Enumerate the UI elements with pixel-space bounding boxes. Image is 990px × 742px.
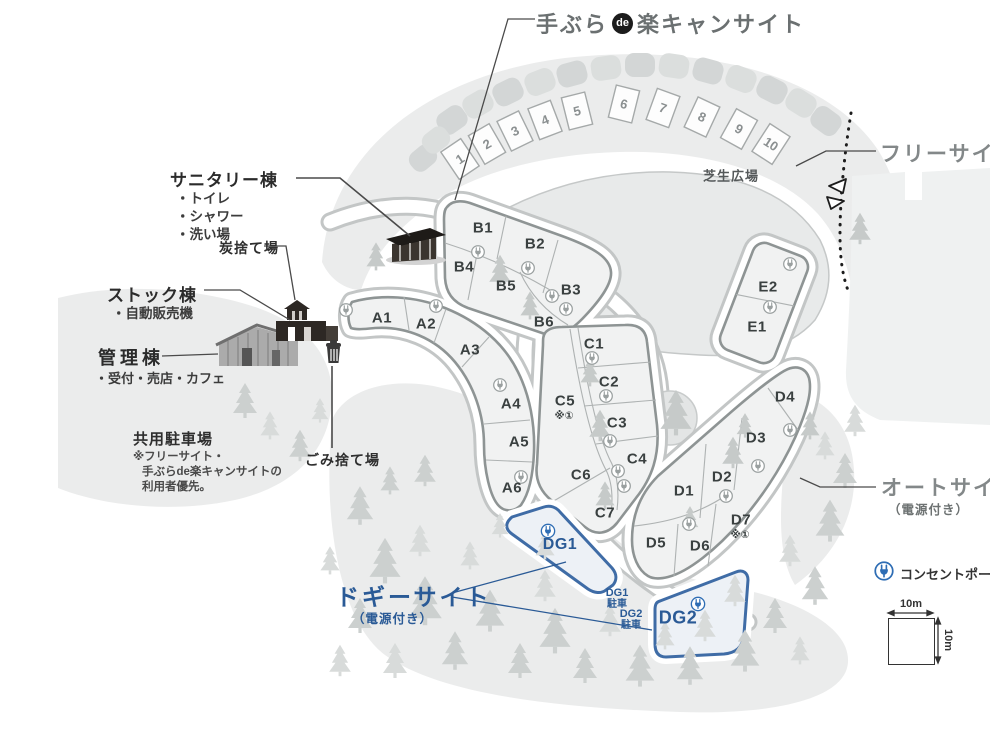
garbage-bin-icon [326, 340, 341, 363]
site-a5: A5 [509, 434, 529, 451]
legend-outlet-pole-label: コンセントポール [900, 564, 990, 583]
dg1-parking-label: DG1 駐車 [606, 588, 629, 610]
title-de-badge: de [612, 13, 633, 34]
stock-building-icon [276, 321, 338, 341]
lawn-label: 芝生広場 [703, 166, 759, 185]
site-a1: A1 [372, 310, 392, 327]
site-d7: D7 [731, 512, 751, 529]
site-e2: E2 [758, 279, 777, 296]
dg2-parking-line1: DG2 [620, 609, 643, 620]
site-b5: B5 [496, 278, 516, 295]
sanitary-items: ・トイレ ・シャワー ・洗い場 [176, 190, 244, 244]
site-d2: D2 [712, 469, 732, 486]
site-b3: B3 [561, 282, 581, 299]
parking-note-line: 利用者優先。 [133, 480, 282, 495]
admin-item: ・受付・売店・カフェ [95, 370, 225, 388]
sanitary-item: ・トイレ [176, 190, 244, 208]
auto-site-note: （電源付き） [888, 499, 969, 518]
terrain-right-strip [846, 168, 990, 425]
site-c6: C6 [571, 467, 591, 484]
doggy-site-note: （電源付き） [352, 608, 433, 627]
garbage-label: ごみ捨て場 [305, 450, 380, 470]
dg2-parking-line2: 駐車 [620, 620, 643, 631]
site-c2: C2 [599, 374, 619, 391]
title-suffix: 楽キャンサイト [637, 7, 805, 39]
site-c5-note: ※① [554, 410, 573, 422]
shared-parking-title: 共用駐車場 [133, 428, 213, 449]
site-d7-note: ※① [730, 529, 749, 541]
scale-height-label: 10m [942, 629, 954, 651]
site-b1: B1 [473, 220, 493, 237]
site-a6: A6 [502, 480, 522, 497]
site-c7: C7 [595, 505, 615, 522]
stock-item: ・自動販売機 [112, 305, 193, 323]
site-a3: A3 [460, 342, 480, 359]
charcoal-hut-icon [284, 300, 310, 320]
admin-title: 管理棟 [98, 344, 164, 370]
site-d6: D6 [690, 538, 710, 555]
site-c4: C4 [627, 451, 647, 468]
site-c1: C1 [584, 336, 604, 353]
site-dg1: DG1 [543, 536, 577, 554]
dg1-parking-line1: DG1 [606, 588, 629, 599]
site-c5: C5 [555, 393, 575, 410]
site-b2: B2 [525, 236, 545, 253]
dg2-parking-label: DG2 駐車 [620, 609, 643, 631]
site-b6: B6 [534, 314, 554, 331]
legend-plug-icon [875, 562, 893, 580]
map-title: 手ぶら de 楽キャンサイト [536, 7, 805, 39]
scale-box [888, 618, 935, 665]
doggy-site-heading: ドギーサイト [336, 578, 492, 612]
site-d5: D5 [646, 535, 666, 552]
free-site-heading: フリーサイト [880, 138, 990, 168]
shared-parking-note: ※フリーサイト・ 手ぶらde楽キャンサイトの 利用者優先。 [133, 450, 282, 495]
auto-site-heading: オートサイト [881, 472, 990, 502]
site-d1: D1 [674, 483, 694, 500]
site-b4: B4 [454, 259, 474, 276]
charcoal-label: 炭捨て場 [219, 238, 279, 258]
site-d3: D3 [746, 430, 766, 447]
sanitary-title: サニタリー棟 [170, 166, 278, 191]
sanitary-item: ・シャワー [176, 208, 244, 226]
title-prefix: 手ぶら [536, 7, 608, 39]
scale-width-label: 10m [900, 598, 922, 610]
site-c3: C3 [607, 415, 627, 432]
stock-title: ストック棟 [107, 281, 197, 306]
parking-note-line: ※フリーサイト・ [133, 450, 282, 465]
parking-note-line: 手ぶらde楽キャンサイトの [133, 465, 282, 480]
site-e1: E1 [747, 319, 766, 336]
site-dg2: DG2 [659, 608, 698, 629]
site-a2: A2 [416, 316, 436, 333]
site-a4: A4 [501, 396, 521, 413]
campground-map: 手ぶら de 楽キャンサイト フリーサイト オートサイト （電源付き） ドギーサ… [0, 0, 990, 742]
site-d4: D4 [775, 389, 795, 406]
